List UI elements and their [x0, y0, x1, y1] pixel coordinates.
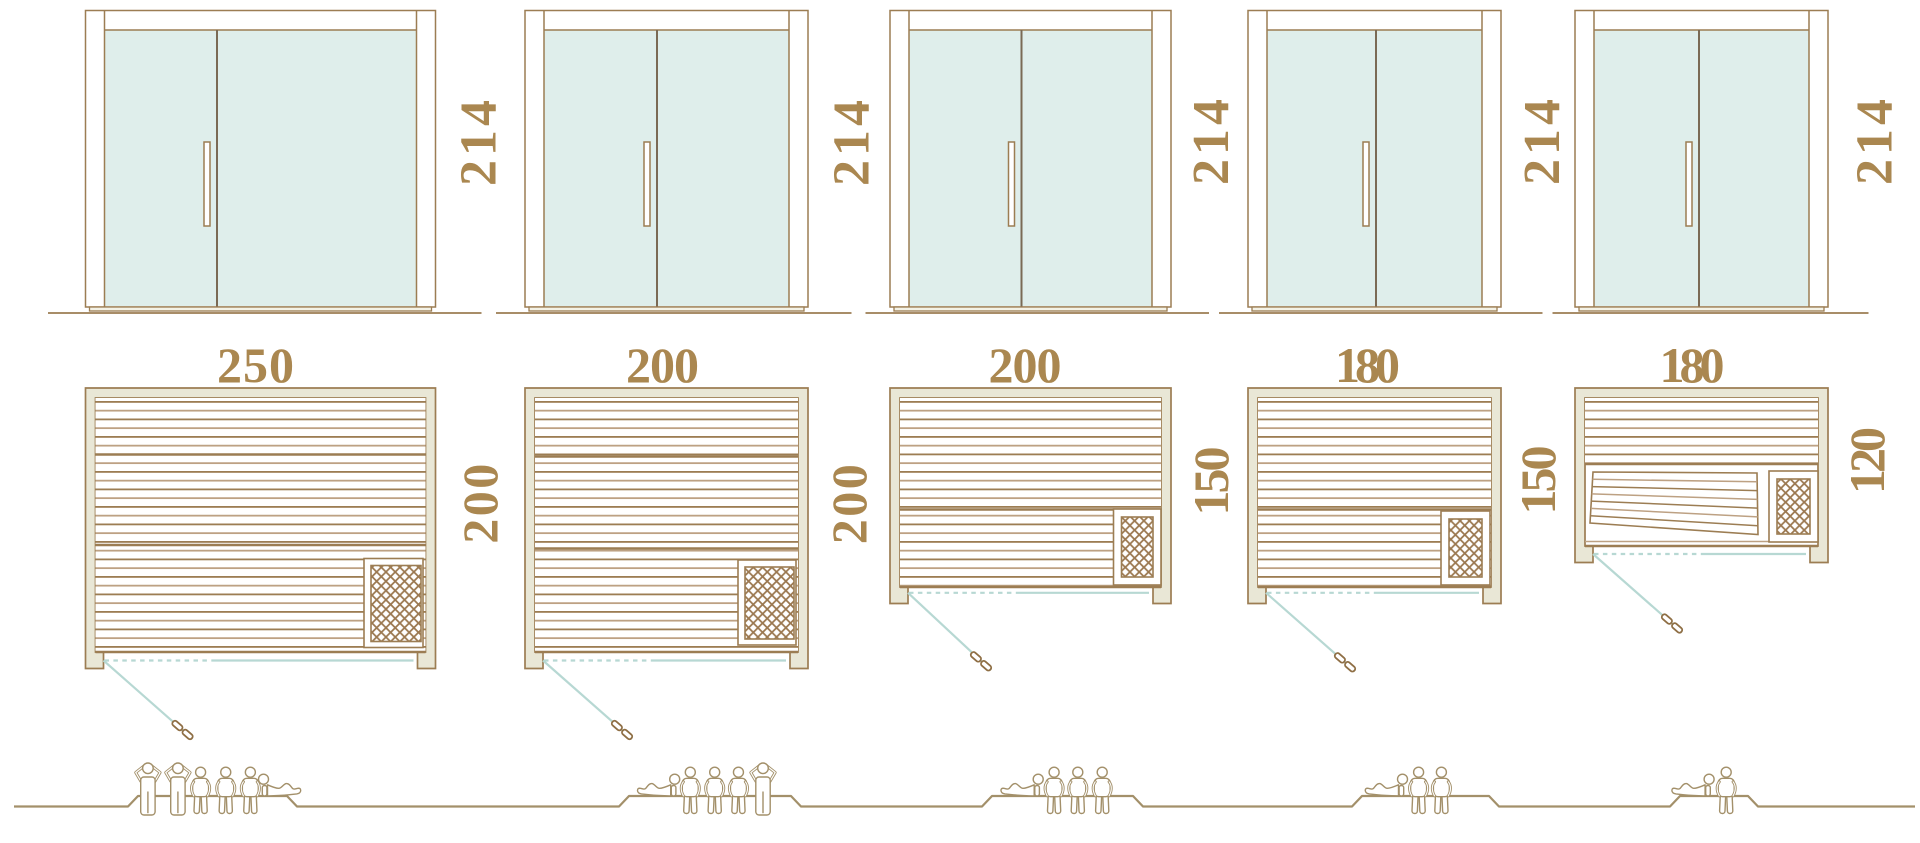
- svg-text:200: 200: [626, 337, 698, 393]
- svg-text:180: 180: [1660, 337, 1724, 393]
- svg-text:250: 250: [217, 337, 295, 393]
- svg-text:214: 214: [1847, 95, 1904, 185]
- svg-text:150: 150: [1510, 447, 1566, 515]
- svg-text:180: 180: [1335, 337, 1399, 393]
- svg-text:200: 200: [989, 337, 1061, 393]
- svg-text:214: 214: [1514, 95, 1571, 185]
- svg-text:214: 214: [824, 96, 881, 186]
- svg-text:120: 120: [1839, 428, 1895, 494]
- svg-text:214: 214: [1183, 95, 1240, 185]
- svg-text:200: 200: [821, 462, 877, 545]
- svg-text:214: 214: [451, 96, 508, 186]
- svg-text:150: 150: [1183, 448, 1239, 516]
- svg-text:200: 200: [452, 461, 508, 544]
